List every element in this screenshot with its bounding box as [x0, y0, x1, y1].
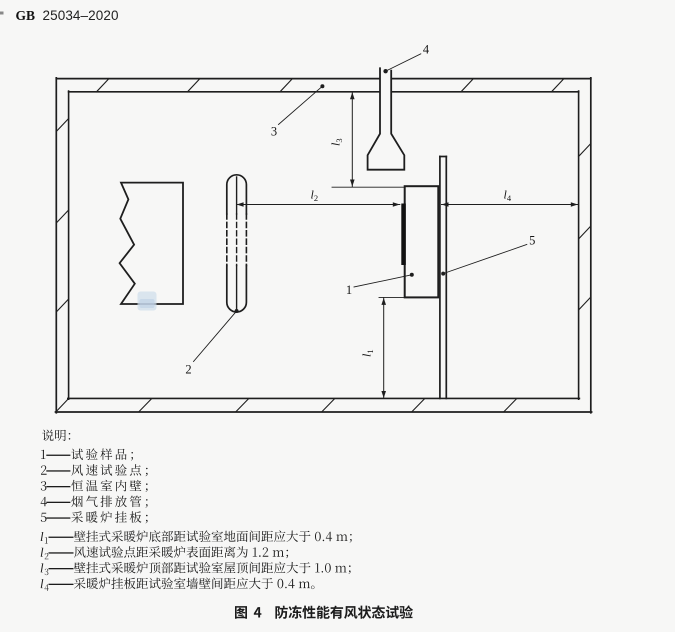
svg-text:25034–2020: 25034–2020 [43, 8, 119, 23]
svg-text:1: 1 [346, 283, 352, 297]
svg-text:5: 5 [529, 234, 535, 248]
svg-text:2: 2 [185, 363, 191, 377]
svg-text:GB: GB [16, 8, 36, 23]
svg-text:4: 4 [423, 43, 430, 57]
svg-text:3: 3 [271, 125, 277, 139]
